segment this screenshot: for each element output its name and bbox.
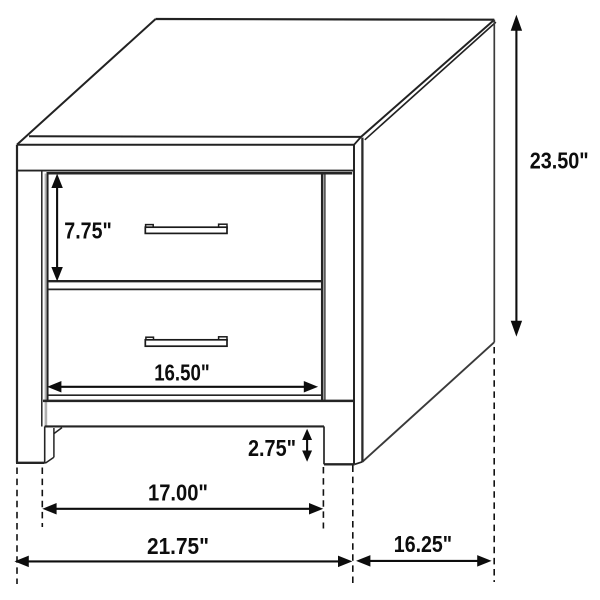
svg-text:2.75": 2.75" xyxy=(248,435,296,461)
svg-text:16.50": 16.50" xyxy=(154,360,210,386)
svg-text:23.50": 23.50" xyxy=(530,148,589,174)
svg-text:16.25": 16.25" xyxy=(394,531,452,557)
svg-text:21.75": 21.75" xyxy=(147,533,209,559)
svg-text:7.75": 7.75" xyxy=(64,218,112,244)
svg-text:17.00": 17.00" xyxy=(148,479,208,505)
